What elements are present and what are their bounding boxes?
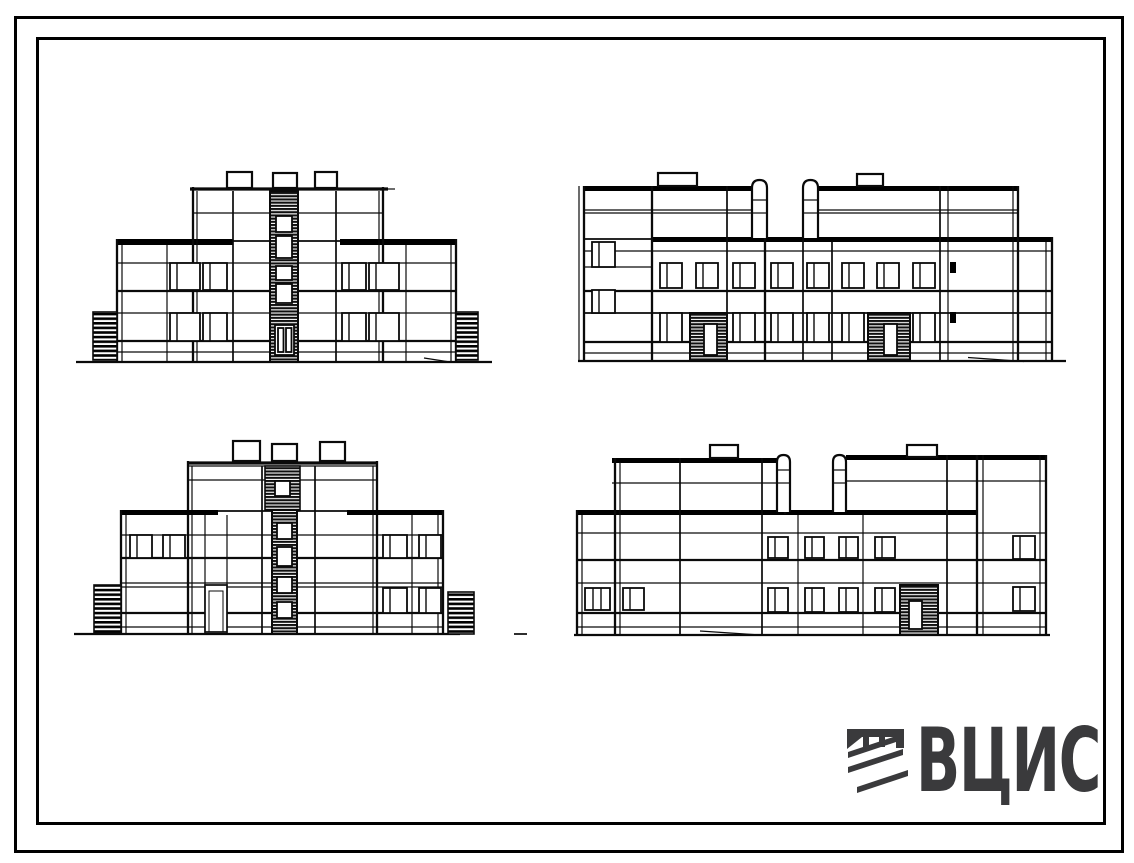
ground-line: [574, 631, 1050, 635]
window: [660, 313, 682, 342]
window: [163, 535, 185, 558]
window: [768, 588, 788, 612]
windows-upper-row: [660, 263, 935, 288]
window: [842, 263, 864, 288]
elevations-drawing: ВЦИС: [0, 0, 1134, 863]
wall-vents: [950, 262, 956, 323]
window: [807, 263, 829, 288]
window: [170, 313, 200, 341]
windows-lower-row: [585, 587, 1035, 612]
window: [660, 263, 682, 288]
windows-upper-row: [768, 536, 1035, 559]
window: [805, 588, 824, 612]
window: [383, 588, 407, 613]
window: [130, 535, 152, 558]
window: [419, 535, 441, 558]
window: [733, 313, 755, 342]
entrance-door: [690, 313, 727, 361]
logo-text: ВЦИС: [916, 710, 1100, 813]
rear-door: [205, 585, 227, 632]
window: [203, 263, 227, 290]
entrance-door: [275, 325, 294, 355]
window: [369, 263, 399, 290]
window: [203, 313, 227, 341]
window: [170, 263, 200, 290]
elevation-side-a: [578, 173, 1066, 362]
window: [342, 263, 366, 290]
window: [842, 313, 864, 342]
window: [585, 588, 610, 610]
window: [875, 588, 895, 612]
window: [733, 263, 755, 288]
window: [839, 588, 858, 612]
window: [913, 313, 935, 342]
window: [419, 588, 441, 613]
stair-strip: [265, 466, 300, 634]
window: [768, 537, 788, 558]
elevation-rear: [74, 441, 527, 634]
window: [877, 263, 899, 288]
drawing-sheet: ВЦИС: [0, 0, 1134, 863]
roof-boxes: [227, 172, 337, 188]
window: [913, 263, 935, 288]
window: [807, 313, 829, 342]
window: [623, 588, 644, 610]
window: [1013, 536, 1035, 559]
window: [696, 263, 718, 288]
entrance-door: [868, 313, 910, 361]
vent-stacks: [777, 455, 846, 512]
roof-boxes: [658, 173, 883, 186]
window: [875, 537, 895, 558]
vcis-logo: ВЦИС: [847, 710, 1100, 813]
window: [771, 263, 793, 288]
roof-boxes: [233, 441, 345, 461]
entrance-door: [900, 585, 938, 635]
window: [839, 537, 858, 558]
window: [592, 242, 615, 267]
window: [805, 537, 824, 558]
window: [771, 313, 793, 342]
window: [1013, 587, 1035, 611]
window: [342, 313, 366, 341]
vcis-stripes-emblem-icon: [847, 729, 908, 793]
elevation-side-b: [574, 445, 1050, 635]
window: [383, 535, 407, 558]
elevation-front: [76, 172, 492, 362]
window: [369, 313, 399, 341]
vent-stacks: [752, 180, 818, 238]
window: [592, 290, 615, 313]
stair-landing-windows: [592, 242, 615, 313]
